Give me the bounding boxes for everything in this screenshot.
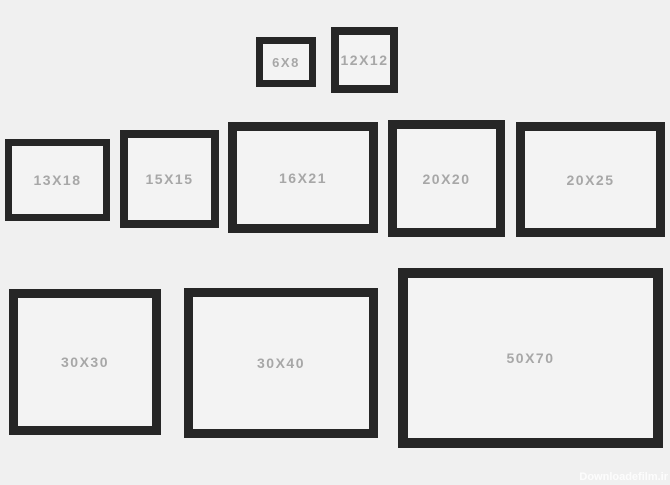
frame-size-label: 16X21 — [279, 170, 327, 186]
frame-20x25: 20X25 — [516, 122, 665, 237]
frame-size-label: 50X70 — [507, 350, 555, 366]
watermark: Downloadefilm.ir — [579, 471, 668, 483]
frame-size-label: 30X30 — [61, 354, 109, 370]
frame-size-label: 13X18 — [34, 172, 82, 188]
frame-size-label: 30X40 — [257, 355, 305, 371]
frame-15x15: 15X15 — [120, 130, 219, 228]
frame-6x8: 6X8 — [256, 37, 316, 87]
frame-20x20: 20X20 — [388, 120, 505, 237]
frame-16x21: 16X21 — [228, 122, 378, 233]
frame-size-label: 15X15 — [146, 171, 194, 187]
frame-13x18: 13X18 — [5, 139, 110, 221]
frame-size-label: 6X8 — [272, 55, 300, 70]
frame-30x30: 30X30 — [9, 289, 161, 435]
frame-50x70: 50X70 — [398, 268, 663, 448]
frame-size-chart: 6X8 12X12 13X18 15X15 16X21 20X20 20X25 … — [0, 0, 670, 485]
frame-size-label: 20X25 — [567, 172, 615, 188]
frame-12x12: 12X12 — [331, 27, 398, 93]
frame-30x40: 30X40 — [184, 288, 378, 438]
frame-size-label: 20X20 — [423, 171, 471, 187]
frame-size-label: 12X12 — [341, 52, 389, 68]
